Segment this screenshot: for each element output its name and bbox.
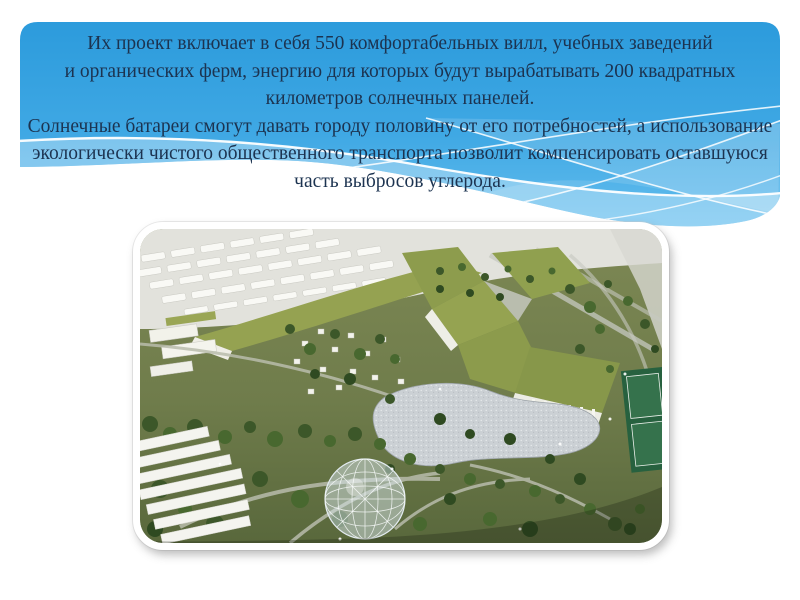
slide-text-line-5: экологически чистого общественного транс… — [0, 140, 800, 168]
photo-geodesic-dome — [325, 459, 405, 539]
slide-text-line-4: Солнечные батареи смогут давать городу п… — [0, 113, 800, 141]
slide-body-text: Их проект включает в себя 550 комфортабе… — [0, 30, 800, 196]
eco-city-photo-frame — [133, 222, 669, 550]
slide-text-line-3: километров солнечных панелей. — [0, 85, 800, 113]
eco-city-aerial-illustration — [140, 229, 662, 543]
slide-canvas: Их проект включает в себя 550 комфортабе… — [0, 0, 800, 600]
slide-text-line-1: Их проект включает в себя 550 комфортабе… — [0, 30, 800, 58]
slide-text-line-2: и органических ферм, энергию для которых… — [0, 58, 800, 86]
slide-text-line-6: часть выбросов углерода. — [0, 168, 800, 196]
